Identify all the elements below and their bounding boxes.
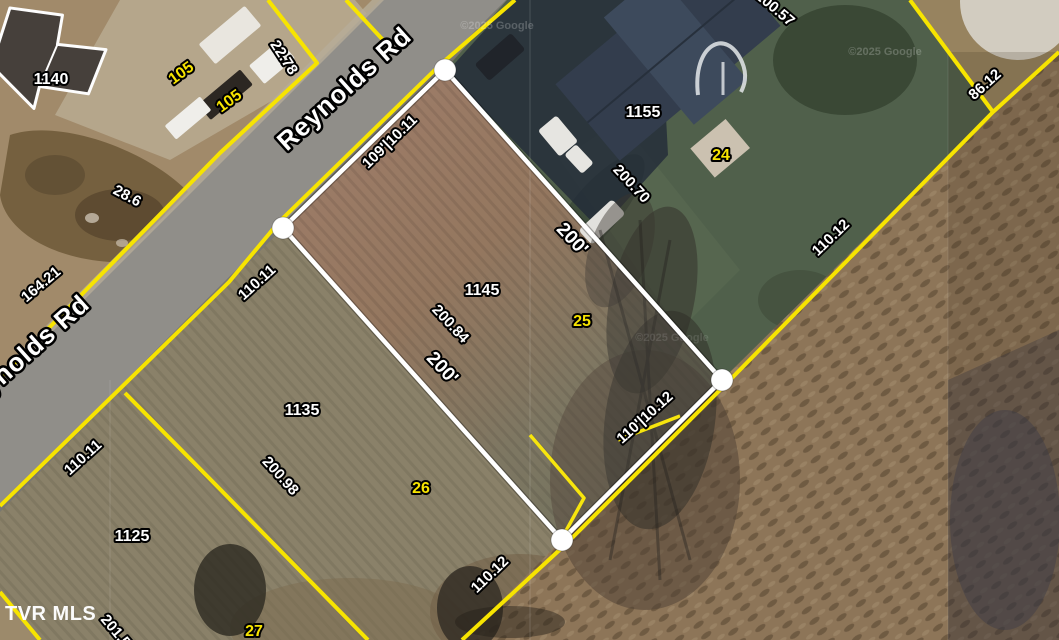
parcel-number-25: 25	[573, 313, 591, 330]
parcel-number-26: 26	[412, 480, 430, 497]
imagery-watermark-a: ©2025 Google	[460, 20, 534, 32]
address-label-1145: 1145	[465, 282, 500, 299]
imagery-watermark-b: ©2025 Google	[848, 46, 922, 58]
address-label-1135: 1135	[285, 402, 320, 419]
map-canvas[interactable]: Reynolds Rd Reynolds Rd 1140 1155 1145 1…	[0, 0, 1059, 640]
corner-marker-north	[434, 59, 456, 81]
mls-watermark: TVR MLS	[5, 603, 96, 625]
parcel-number-24: 24	[712, 147, 730, 164]
parcel-number-27: 27	[245, 623, 263, 640]
address-label-1155: 1155	[626, 104, 661, 121]
corner-marker-east	[711, 369, 733, 391]
corner-marker-west	[272, 217, 294, 239]
address-label-1140: 1140	[34, 71, 69, 88]
address-label-1125: 1125	[115, 528, 150, 545]
corner-marker-south	[551, 529, 573, 551]
imagery-watermark-c: ©2025 Google	[635, 332, 709, 344]
aerial-map[interactable]: Reynolds Rd Reynolds Rd 1140 1155 1145 1…	[0, 0, 1059, 640]
